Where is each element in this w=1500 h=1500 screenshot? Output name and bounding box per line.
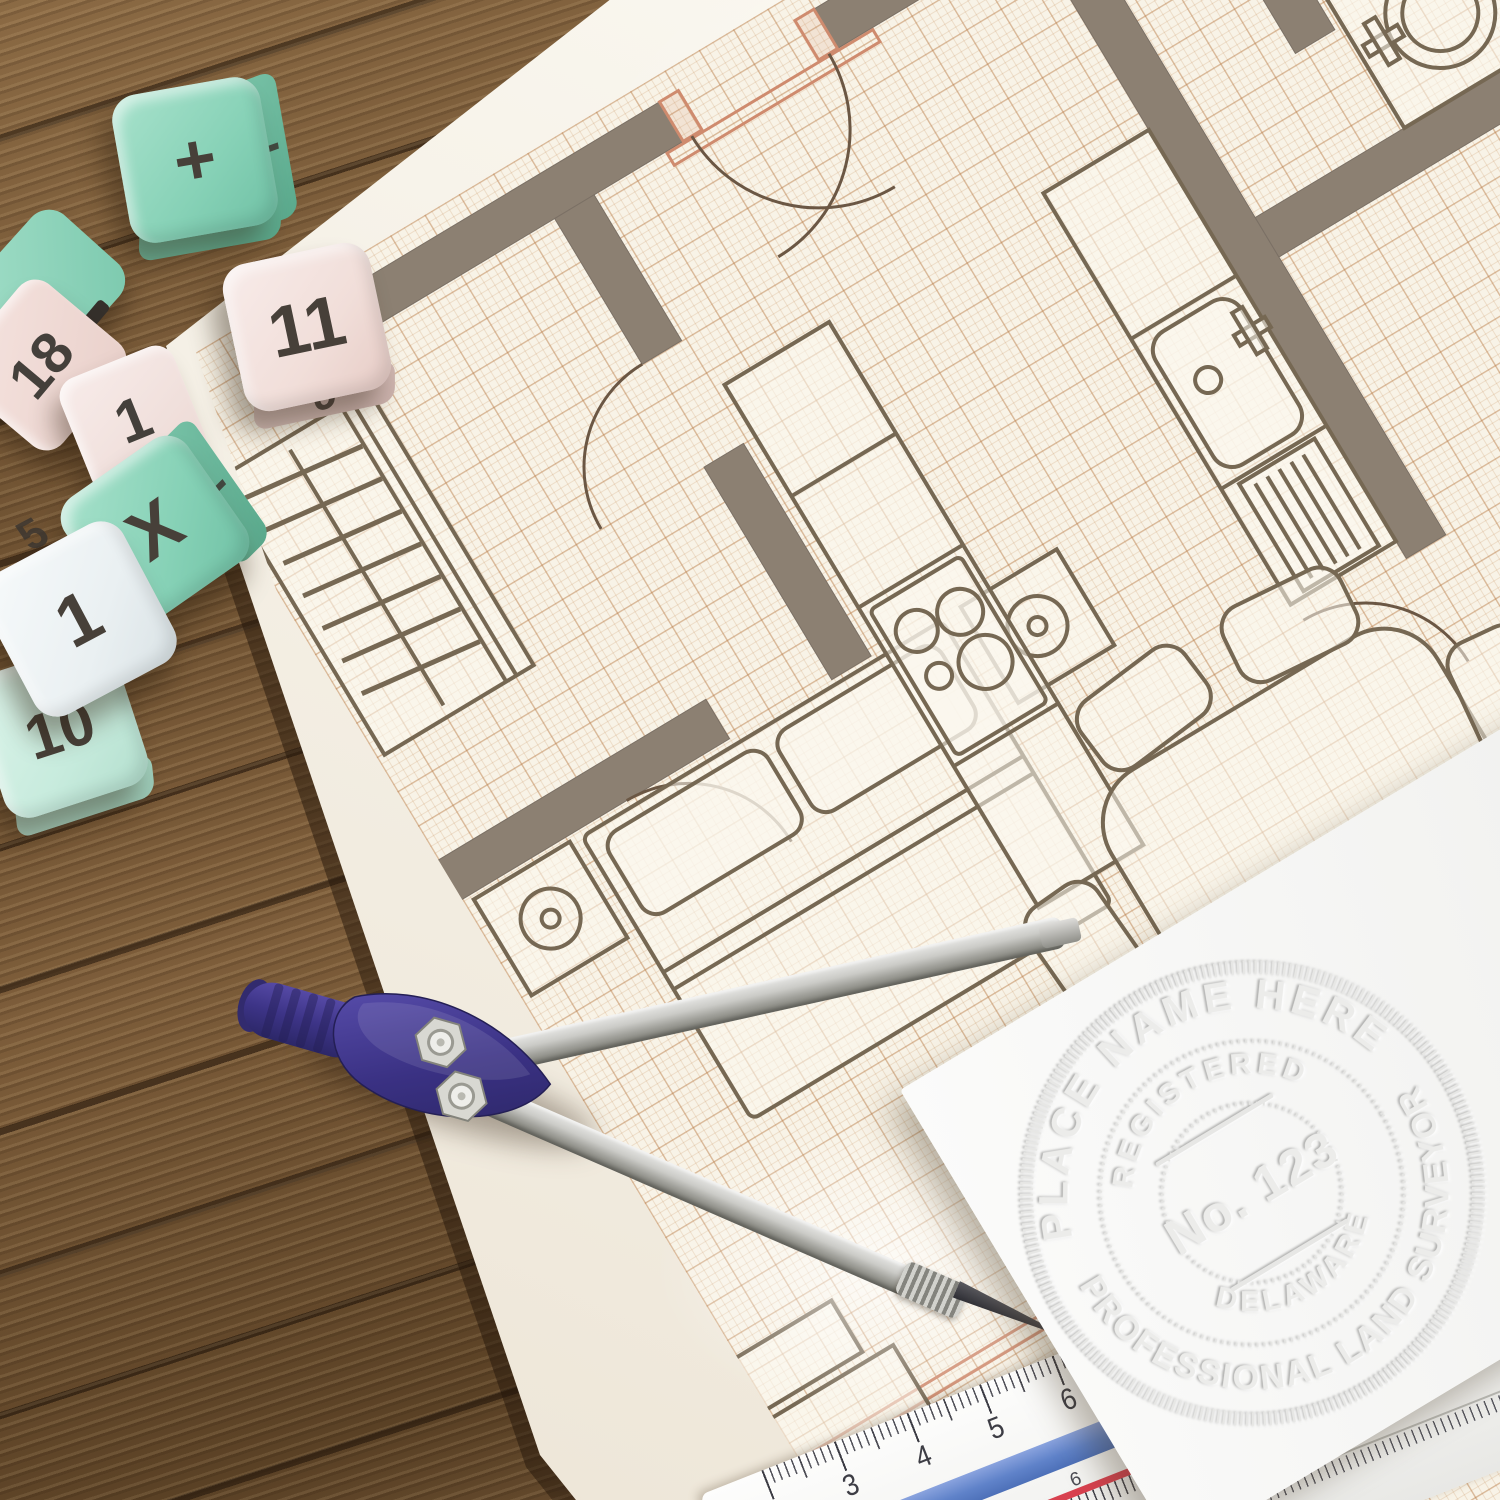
desk-scene: + — + 6 11 18 1 ÷ X 10 5 1	[0, 0, 1500, 1500]
entry-door-arc-right	[692, 60, 895, 263]
die-glyph: 1	[42, 573, 116, 664]
compass-head	[232, 950, 580, 1155]
die-eleven-face: 11	[218, 238, 396, 416]
die-plus-face: +	[108, 73, 282, 247]
die-plus: + — +	[108, 73, 282, 247]
die-glyph: +	[167, 116, 223, 204]
door-arc-closet-room	[539, 364, 704, 529]
ruler-number: 5	[983, 1410, 1009, 1447]
ruler-number: 2	[766, 1496, 792, 1500]
entry-door-arc-left	[702, 54, 905, 257]
wall-mid-upper	[555, 195, 682, 364]
ruler-number: 3	[838, 1467, 864, 1500]
die-glyph: 11	[261, 279, 353, 375]
seal-number-text: No. 123	[1155, 1119, 1348, 1266]
ruler-number: 4	[911, 1439, 937, 1476]
die-eleven: 6 11	[218, 238, 396, 416]
